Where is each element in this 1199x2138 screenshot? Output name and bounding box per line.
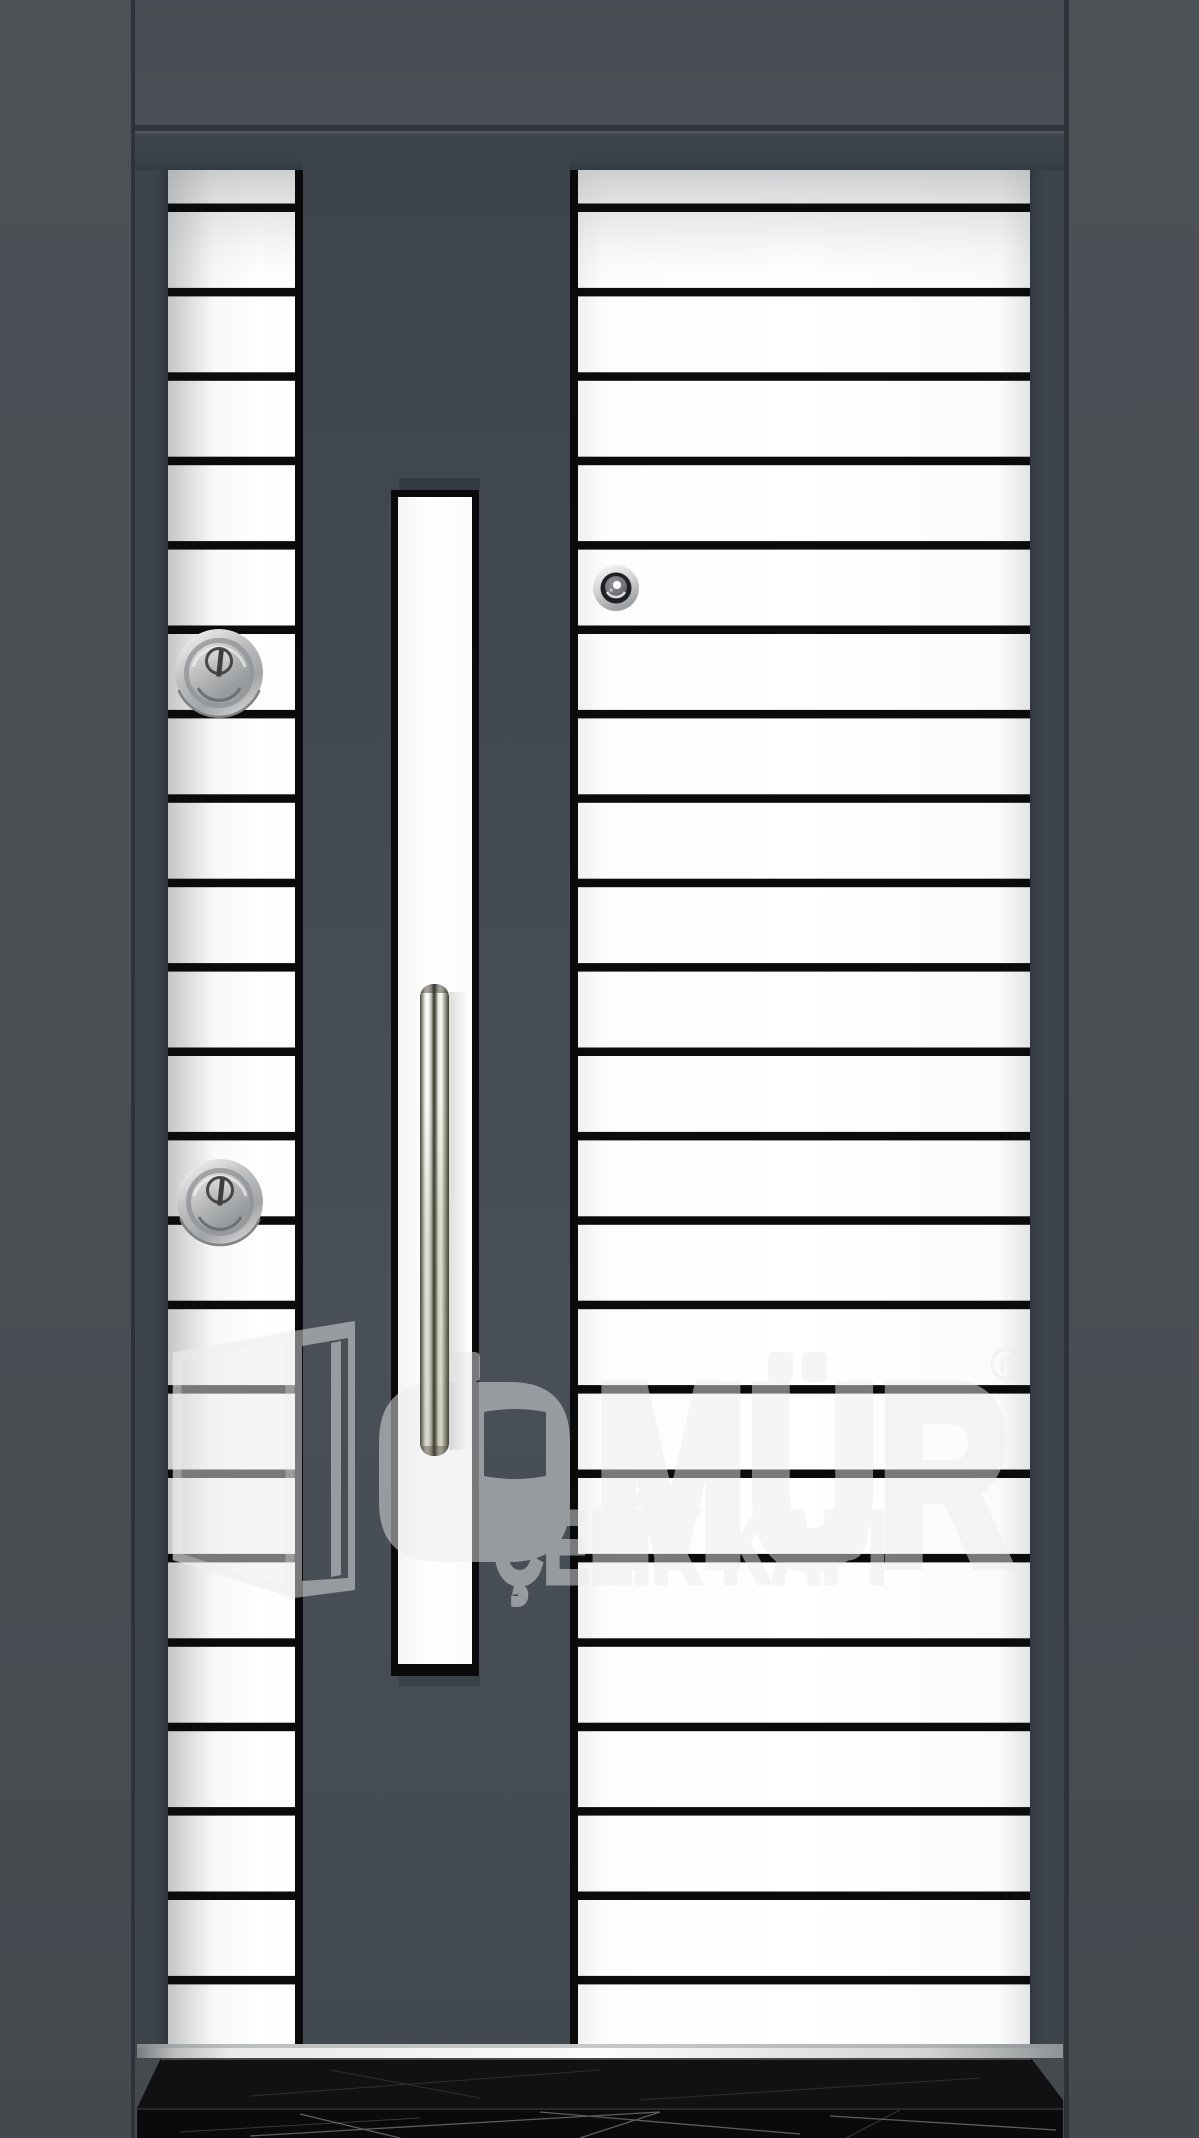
svg-text:R: R [999, 1354, 1014, 1377]
svg-text:ÇELİK KAPI: ÇELİK KAPI [493, 1490, 887, 1605]
